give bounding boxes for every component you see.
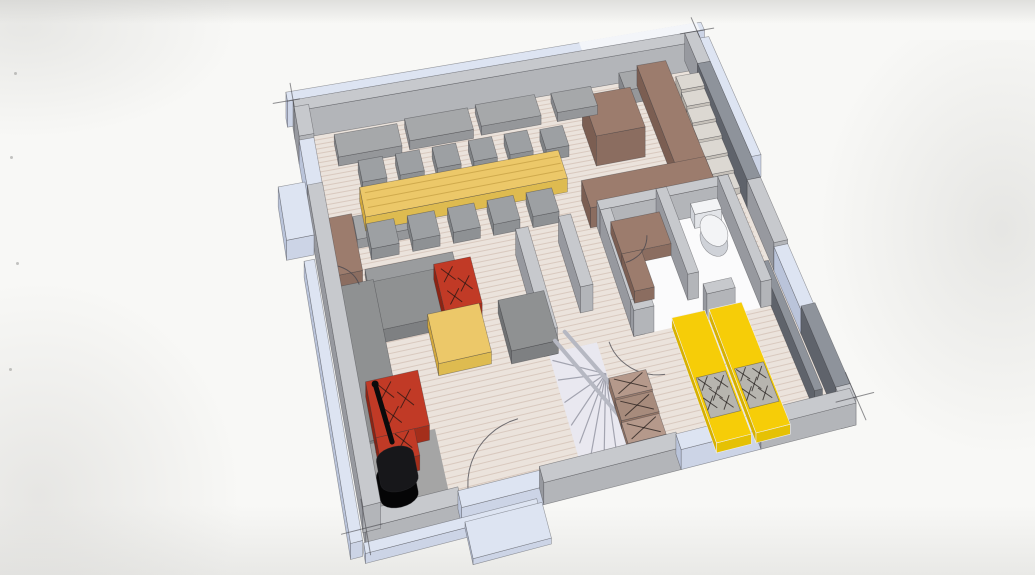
wood-stove [376,446,418,492]
floor-plan-canvas [0,0,1035,575]
floor-plan-stage: 3D floor plan sketch — open-plan living … [0,0,1035,575]
dining-chair-bottom-1 [366,219,399,249]
dining-chair-top-2 [395,150,424,176]
dining-chair-bottom-2 [407,211,440,241]
dining-chair-top-1 [358,156,387,182]
armchair-red-lower-a [366,370,430,438]
stove-pipe-cap [372,381,379,388]
dining-chair-top-3 [432,143,461,168]
